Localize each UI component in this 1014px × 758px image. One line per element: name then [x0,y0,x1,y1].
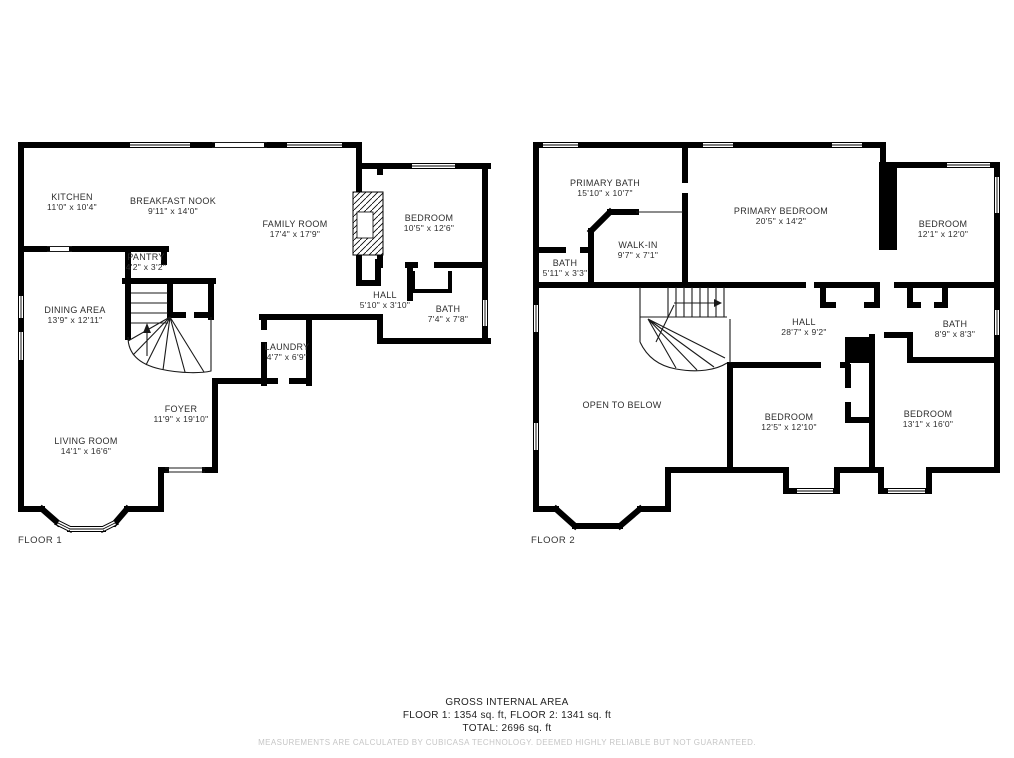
room-label-bedroom-f1: BEDROOM 10'5" x 12'6" [404,213,455,233]
floorplan-canvas: KITCHEN 11'0" x 10'4" BREAKFAST NOOK 9'1… [0,0,1014,758]
floorplan-walls-svg [0,0,1014,758]
room-label-living-room: LIVING ROOM 14'1" x 16'6" [54,436,117,456]
room-label-bedroom-sw: BEDROOM 12'5" x 12'10" [761,412,817,432]
room-label-kitchen: KITCHEN 11'0" x 10'4" [47,192,97,212]
room-label-laundry: LAUNDRY 4'7" x 6'9" [265,342,310,362]
total-area-text: TOTAL: 2696 sq. ft [0,723,1014,734]
disclaimer-text: MEASUREMENTS ARE CALCULATED BY CUBICASA … [0,738,1014,747]
chimney-hall [845,337,870,363]
floor2-tag: FLOOR 2 [531,535,575,546]
room-label-primary-bath: PRIMARY BATH 15'10" x 10'7" [570,178,640,198]
floor2-walls [536,145,997,526]
room-label-bath-f2: BATH 8'9" x 8'3" [935,319,975,339]
floor1-tag: FLOOR 1 [18,535,62,546]
room-label-bath-f1: BATH 7'4" x 7'8" [428,304,468,324]
room-label-open-to-below: OPEN TO BELOW [582,400,661,410]
room-label-bedroom-se: BEDROOM 13'1" x 16'0" [903,409,954,429]
room-label-pantry: PANTRY 4'2" x 3'2" [126,252,166,272]
floor2-stairs-arrow [714,299,722,307]
room-label-hall-f2: HALL 28'7" x 9'2" [781,317,827,337]
fireplace-firebox [357,212,373,238]
room-label-dining-area: DINING AREA 13'9" x 12'11" [44,305,105,325]
room-label-breakfast-nook: BREAKFAST NOOK 9'11" x 14'0" [130,196,216,216]
room-label-walk-in: WALK-IN 9'7" x 7'1" [618,240,658,260]
floor-areas-text: FLOOR 1: 1354 sq. ft, FLOOR 2: 1341 sq. … [0,710,1014,721]
room-label-foyer: FOYER 11'9" x 19'10" [154,404,209,424]
room-label-primary-bedroom: PRIMARY BEDROOM 20'5" x 14'2" [734,206,828,226]
room-label-bedroom-ne: BEDROOM 12'1" x 12'0" [918,219,969,239]
gross-internal-area-title: GROSS INTERNAL AREA [0,697,1014,708]
room-label-family-room: FAMILY ROOM 17'4" x 17'9" [263,219,328,239]
room-label-bath-small-f2: BATH 5'11" x 3'3" [543,258,588,278]
floor1-bath-closet [413,271,450,291]
room-label-hall-f1: HALL 5'10" x 3'10" [360,290,411,310]
chimney-upper [879,162,897,250]
